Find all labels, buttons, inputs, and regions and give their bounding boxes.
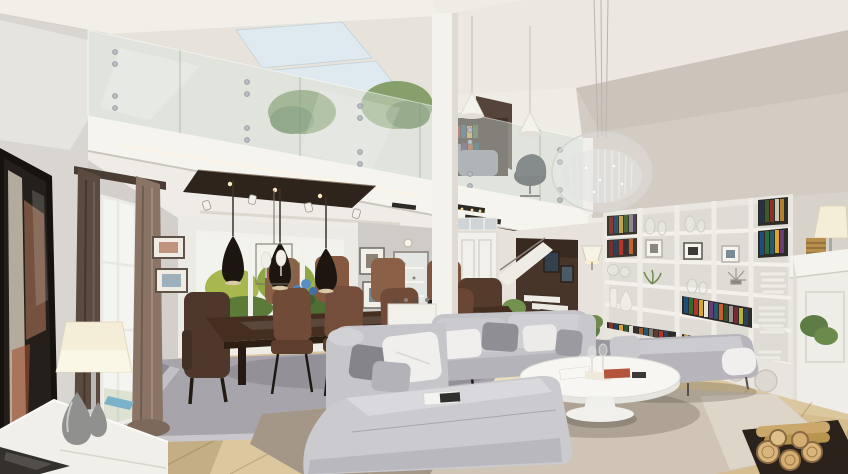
table-book-red	[604, 368, 630, 378]
scene-canvas	[0, 0, 848, 474]
door-transom	[457, 218, 497, 230]
lamp-stem	[91, 372, 96, 410]
post-shade	[452, 13, 458, 332]
coffee-table-foot	[566, 406, 634, 422]
curtain-right	[132, 176, 163, 432]
sofa-pillow	[442, 328, 482, 359]
sofa-pillow	[555, 329, 584, 358]
speaker-grille	[755, 370, 777, 392]
stair-wall-frame	[561, 266, 573, 282]
sofa-armrest-roll	[328, 328, 364, 346]
wall-left-bright	[0, 20, 88, 150]
sofa-pillow	[371, 360, 411, 393]
books-row-r2c1	[607, 238, 637, 258]
chandelier-crystal-core	[562, 149, 642, 203]
frame-r2c3	[684, 243, 702, 259]
chaise-magazine-cover	[440, 392, 461, 402]
books-row-r1c1	[607, 214, 637, 236]
sofa-pillow	[522, 324, 558, 352]
cone-pendant	[519, 112, 541, 134]
firewood	[742, 420, 848, 474]
interior-photo	[0, 0, 848, 474]
lamp-shade-glow	[56, 350, 132, 372]
books-row-r1c5	[758, 197, 788, 226]
frame-r2c2	[646, 240, 662, 257]
daybed-cushion-white	[721, 347, 757, 376]
sofa-pillow	[481, 322, 519, 352]
structural-post	[432, 13, 458, 332]
white-book-stack-r4c5	[758, 306, 786, 334]
partition-mullion	[248, 234, 253, 324]
books-row-r2c5	[758, 228, 788, 258]
small-sconce	[404, 239, 412, 247]
table-book-dark	[632, 372, 646, 378]
frame-r2c4	[722, 246, 739, 262]
